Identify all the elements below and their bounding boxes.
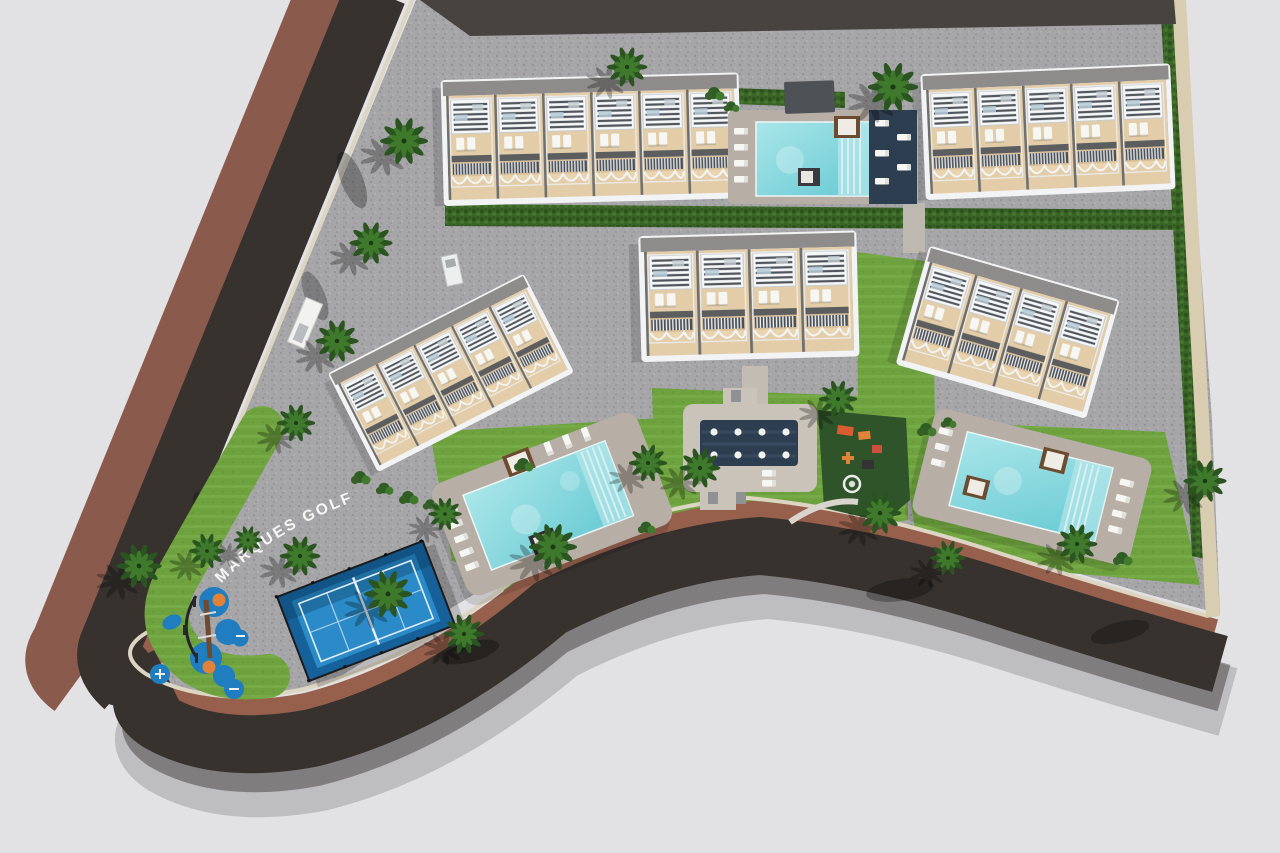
pool-top-daybed — [798, 168, 820, 186]
building-4 — [628, 230, 859, 362]
building-2 — [911, 63, 1175, 200]
pool-top-cabana — [834, 116, 860, 138]
pool-top-pavilion — [784, 80, 835, 114]
play-mat-orange — [203, 661, 216, 674]
community-plaza — [683, 388, 817, 510]
building-1 — [432, 72, 742, 206]
site-plan-canvas: MARQUES GOLF — [0, 0, 1280, 853]
path-connector-top — [903, 203, 925, 253]
play-mat-orange — [213, 594, 226, 607]
site-plan-render: MARQUES GOLF — [0, 0, 1280, 853]
